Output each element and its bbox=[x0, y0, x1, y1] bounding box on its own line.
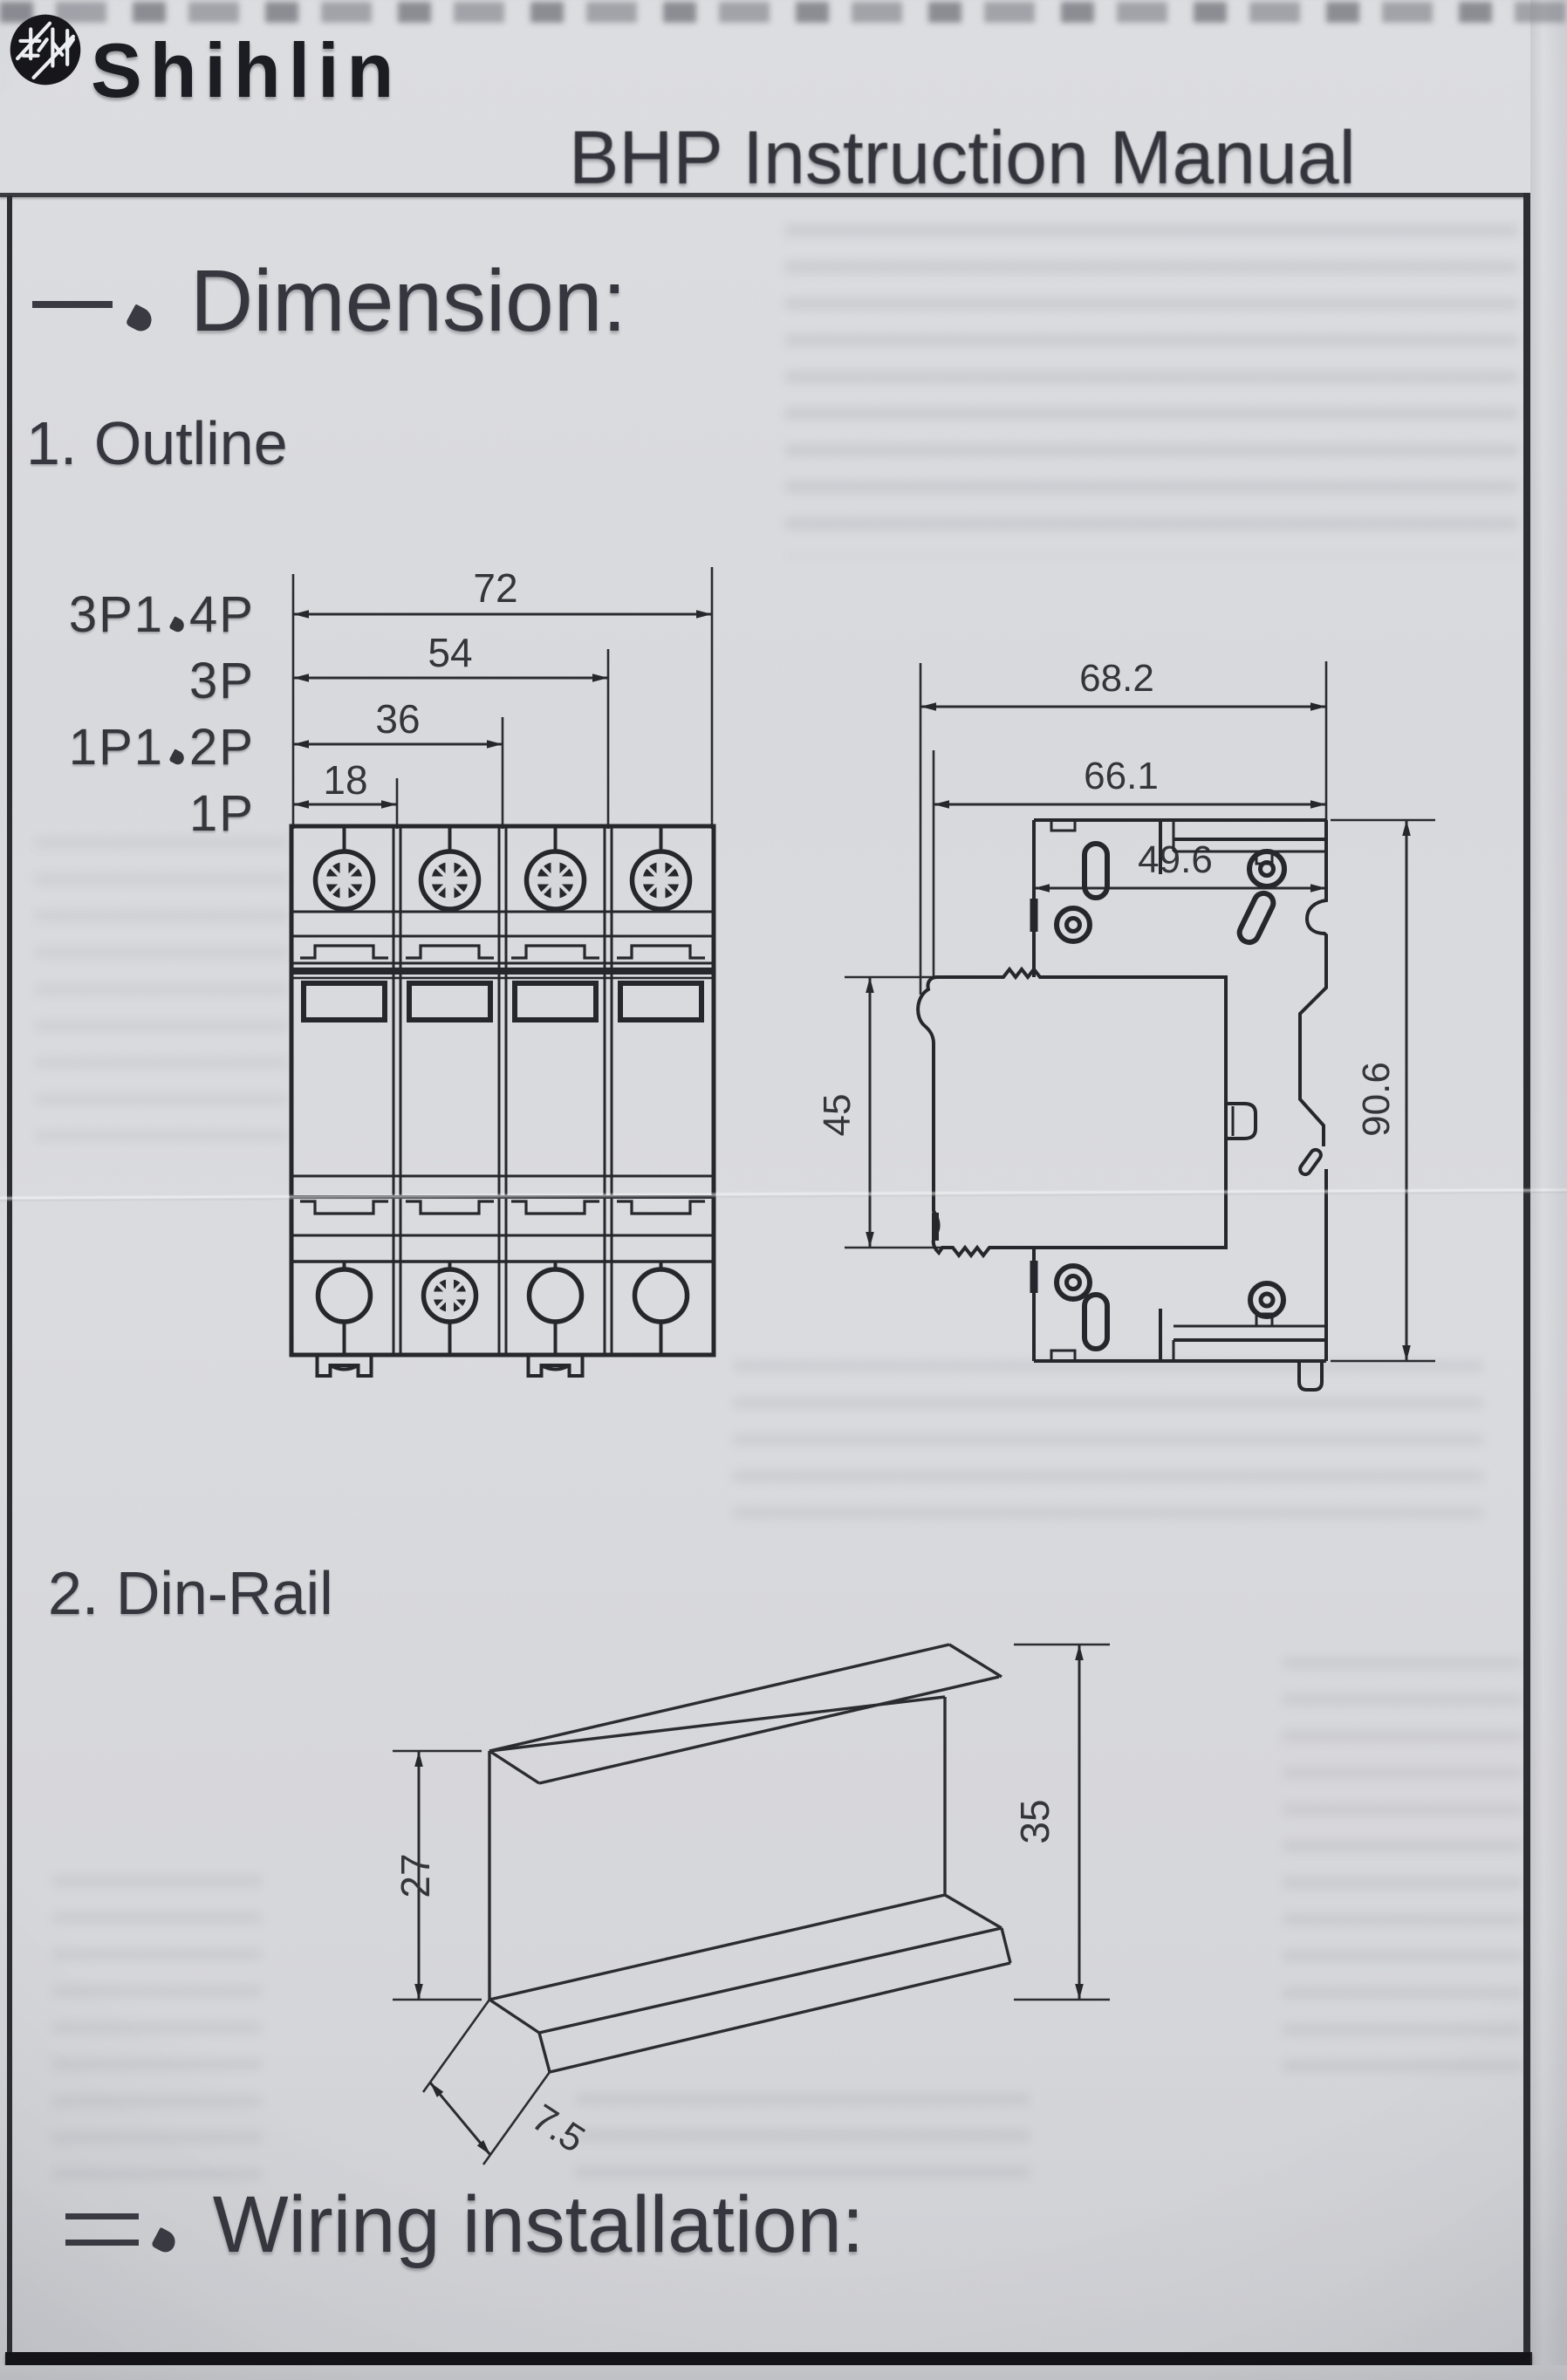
pole-label-column: 3P14P 3P 1P12P 1P bbox=[26, 590, 255, 860]
breaker-side-profile bbox=[918, 820, 1326, 1390]
page-edge-shadow bbox=[1530, 0, 1567, 2380]
pole-label: 1P12P bbox=[69, 722, 255, 773]
dim-18: 18 bbox=[323, 757, 367, 803]
dim-7-5: 7.5 bbox=[524, 2096, 592, 2161]
shihlin-logo bbox=[9, 12, 82, 87]
section-heading-dimension: Dimension: bbox=[28, 251, 626, 352]
dim-49-6: 49.6 bbox=[1138, 838, 1213, 881]
bleedthrough-patch bbox=[785, 225, 1518, 557]
pole-label: 3P bbox=[189, 656, 255, 707]
section-numeral bbox=[61, 2179, 183, 2271]
section-numeral bbox=[28, 251, 161, 352]
mount-tab bbox=[529, 1355, 583, 1376]
bleedthrough-patch bbox=[35, 838, 288, 1169]
page-frame-left bbox=[7, 195, 12, 2362]
page-bottom-edge bbox=[0, 2365, 1567, 2380]
dim-68-2: 68.2 bbox=[1079, 657, 1154, 700]
dim-72: 72 bbox=[473, 565, 517, 611]
section-title: Dimension: bbox=[190, 251, 626, 352]
brand-name: Shihlin bbox=[91, 26, 401, 115]
dim-66-1: 66.1 bbox=[1084, 755, 1159, 797]
bleedthrough-patch bbox=[1283, 1658, 1523, 2076]
dim-45: 45 bbox=[816, 1094, 859, 1137]
dinrail-dimensions bbox=[393, 1645, 1110, 2165]
header-rule bbox=[0, 193, 1529, 197]
pole-label: 3P14P bbox=[69, 590, 255, 640]
section-title: Wiring installation: bbox=[213, 2179, 865, 2271]
section-heading-wiring: Wiring installation: bbox=[61, 2179, 864, 2271]
dim-27: 27 bbox=[393, 1853, 438, 1898]
page-frame-bottom bbox=[5, 2352, 1532, 2365]
terminal-screws-bottom bbox=[318, 1262, 688, 1355]
dim-90-6: 90.6 bbox=[1355, 1062, 1398, 1137]
outline-side-view-drawing: 68.2 66.1 49.6 45 90.6 bbox=[820, 611, 1483, 1413]
page-frame-right bbox=[1523, 193, 1530, 2362]
pole-label: 1P bbox=[189, 789, 255, 839]
document-title: BHP Instruction Manual bbox=[569, 115, 1356, 202]
outline-front-view-drawing: 72 54 36 18 bbox=[262, 541, 750, 1405]
dim-54: 54 bbox=[428, 630, 472, 675]
dim-35: 35 bbox=[1012, 1799, 1057, 1843]
subsection-outline: 1. Outline bbox=[26, 408, 288, 478]
dim-36: 36 bbox=[375, 696, 420, 742]
mount-tab bbox=[318, 1355, 372, 1376]
dinrail-profile bbox=[489, 1645, 1010, 2072]
terminal-screws-top bbox=[316, 826, 690, 913]
dinrail-isometric-drawing: 27 35 7.5 bbox=[218, 1597, 1309, 2207]
breaker-front-view bbox=[291, 826, 714, 1376]
bleedthrough-top-strip bbox=[0, 2, 1567, 23]
